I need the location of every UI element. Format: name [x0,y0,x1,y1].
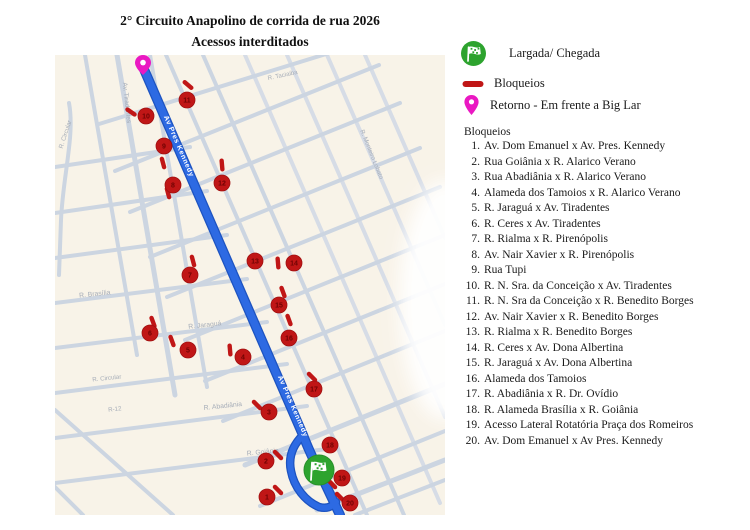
blockade-item: 3.Rua Abadiânia x R. Alarico Verano [460,170,746,186]
blockade-item-text: Rua Abadiânia x R. Alarico Verano [484,170,694,186]
blockade-marker-13: 13 [247,253,263,269]
blockade-item: 15.R. Jaraguá x Av. Dona Albertina [460,356,746,372]
svg-text:10: 10 [142,114,150,121]
blockade-item-number: 14. [460,341,480,357]
blockade-marker-11: 11 [179,92,195,108]
flyer-page: 2° Circuito Anapolino de corrida de rua … [0,0,750,530]
blockade-item-text: Alameda dos Tamoios [484,372,694,388]
blockade-item-text: R. Ceres x Av. Dona Albertina [484,341,694,357]
return-pin-icon [464,95,479,116]
blockade-marker-15: 15 [271,297,287,313]
svg-text:7: 7 [188,273,192,280]
blockade-item-number: 9. [460,263,480,279]
blockade-item: 7.R. Rialma x R. Pirenópolis [460,232,746,248]
svg-text:8: 8 [171,183,175,190]
blockade-item-number: 15. [460,356,480,372]
svg-text:5: 5 [186,348,190,355]
map-start-marker [304,455,334,485]
blockade-marker-4: 4 [235,349,251,365]
blockade-marker-7: 7 [182,267,198,283]
blockade-marker-16: 16 [281,330,297,346]
blockade-item-number: 13. [460,325,480,341]
blockade-item: 6.R. Ceres x Av. Tiradentes [460,217,746,233]
svg-text:3: 3 [267,410,271,417]
blockade-marker-8: 8 [165,177,181,193]
blockade-marker-3: 3 [261,404,277,420]
blockade-item-text: Acesso Lateral Rotatória Praça dos Romei… [484,418,694,434]
route-map: Av Pres KennedyAv Pres Kennedy Av. Tirad… [55,55,445,515]
svg-text:6: 6 [148,331,152,338]
title-line1: 2° Circuito Anapolino de corrida de rua … [50,11,450,32]
blockade-item-number: 16. [460,372,480,388]
legend: Largada/ Chegada Bloqueios Retorno - Em … [458,40,746,449]
svg-text:18: 18 [326,443,334,450]
blockade-marker-10: 10 [138,108,154,124]
blockade-item-text: R. N. Sra da Conceição x R. Benedito Bor… [484,294,694,310]
blockade-item: 14.R. Ceres x Av. Dona Albertina [460,341,746,357]
blockade-marker-1: 1 [259,489,275,505]
svg-text:2: 2 [264,459,268,466]
blockade-item-number: 8. [460,248,480,264]
blockade-item-number: 11. [460,294,480,310]
blockade-list: Bloqueios 1.Av. Dom Emanuel x Av. Pres. … [460,126,746,449]
blockade-item: 9.Rua Tupi [460,263,746,279]
blockade-item: 1.Av. Dom Emanuel x Av. Pres. Kennedy [460,139,746,155]
blockade-item: 4.Alameda dos Tamoios x R. Alarico Veran… [460,186,746,202]
svg-text:15: 15 [275,303,283,310]
blockade-item-text: Av. Nair Xavier x R. Benedito Borges [484,310,694,326]
legend-blockade-label: Bloqueios [494,76,545,91]
legend-blockade-row: Bloqueios [462,76,746,91]
blockade-item: 17.R. Abadiânia x R. Dr. Ovídio [460,387,746,403]
blockade-marker-9: 9 [156,138,172,154]
blockade-marker-14: 14 [286,255,302,271]
blockade-item-text: Alameda dos Tamoios x R. Alarico Verano [484,186,694,202]
blockade-item-number: 4. [460,186,480,202]
blockade-item: 18.R. Alameda Brasília x R. Goiânia [460,403,746,419]
blockade-item-number: 5. [460,201,480,217]
blockade-items: 1.Av. Dom Emanuel x Av. Pres. Kennedy2.R… [460,139,746,449]
blockade-item: 13.R. Rialma x R. Benedito Borges [460,325,746,341]
blockade-item-number: 10. [460,279,480,295]
blockade-item-text: Av. Nair Xavier x R. Pirenópolis [484,248,694,264]
blockade-marker-18: 18 [322,437,338,453]
legend-return-label: Retorno - Em frente a Big Lar [490,98,641,113]
blockade-item-number: 18. [460,403,480,419]
svg-text:16: 16 [285,336,293,343]
blockade-item: 16.Alameda dos Tamoios [460,372,746,388]
page-title: 2° Circuito Anapolino de corrida de rua … [50,11,450,53]
svg-text:14: 14 [290,261,298,268]
svg-text:4: 4 [241,355,245,362]
blockade-item-text: Rua Goiânia x R. Alarico Verano [484,155,694,171]
svg-text:1: 1 [265,495,269,502]
blockade-item-text: R. Rialma x R. Benedito Borges [484,325,694,341]
blockade-marker-12: 12 [214,175,230,191]
blockade-item-number: 20. [460,434,480,450]
blockade-item: 20.Av. Dom Emanuel x Av Pres. Kennedy [460,434,746,450]
blockade-item: 12.Av. Nair Xavier x R. Benedito Borges [460,310,746,326]
blockade-item-number: 1. [460,139,480,155]
blockade-item-number: 19. [460,418,480,434]
blockade-list-title: Bloqueios [464,126,746,138]
legend-start-label: Largada/ Chegada [509,46,600,61]
blockade-marker-17: 17 [306,381,322,397]
blockade-item-text: R. Ceres x Av. Tiradentes [484,217,694,233]
legend-start-row: Largada/ Chegada [460,40,746,67]
blockade-item-text: Av. Dom Emanuel x Av. Pres. Kennedy [484,139,694,155]
blockade-item-number: 7. [460,232,480,248]
blockade-item: 19.Acesso Lateral Rotatória Praça dos Ro… [460,418,746,434]
blockade-item-text: R. Abadiânia x R. Dr. Ovídio [484,387,694,403]
title-line2: Acessos interditados [50,32,450,53]
blockade-marker-6: 6 [142,325,158,341]
blockade-item-text: R. Jaraguá x Av. Dona Albertina [484,356,694,372]
svg-text:12: 12 [218,181,226,188]
blockade-item-number: 6. [460,217,480,233]
blockade-item-text: Av. Dom Emanuel x Av Pres. Kennedy [484,434,694,450]
blockade-marker-2: 2 [258,453,274,469]
svg-text:19: 19 [338,476,346,483]
blockade-item-number: 17. [460,387,480,403]
blockade-marker-19: 19 [334,470,350,486]
blockade-item: 11.R. N. Sra da Conceição x R. Benedito … [460,294,746,310]
blockade-item: 10.R. N. Sra. da Conceição x Av. Tiraden… [460,279,746,295]
blockade-item: 2.Rua Goiânia x R. Alarico Verano [460,155,746,171]
blockade-dash-icon [462,80,484,88]
blockade-item-text: R. Alameda Brasília x R. Goiânia [484,403,694,419]
legend-return-row: Retorno - Em frente a Big Lar [464,95,746,116]
blockade-item-number: 3. [460,170,480,186]
blockade-item: 8.Av. Nair Xavier x R. Pirenópolis [460,248,746,264]
blockade-marker-20: 20 [342,495,358,511]
blockade-item-text: R. N. Sra. da Conceição x Av. Tiradentes [484,279,694,295]
blockade-marker-5: 5 [180,342,196,358]
svg-text:17: 17 [310,387,318,394]
street-label: R-12 [108,405,123,413]
svg-text:20: 20 [346,501,354,508]
blockade-item-text: R. Jaraguá x Av. Tiradentes [484,201,694,217]
start-flag-icon [460,40,487,67]
blockade-item-text: Rua Tupi [484,263,694,279]
blockade-item-number: 12. [460,310,480,326]
svg-text:9: 9 [162,144,166,151]
blockade-item-text: R. Rialma x R. Pirenópolis [484,232,694,248]
blockade-item-number: 2. [460,155,480,171]
blockade-item: 5.R. Jaraguá x Av. Tiradentes [460,201,746,217]
svg-text:13: 13 [251,259,259,266]
svg-text:11: 11 [183,98,191,105]
